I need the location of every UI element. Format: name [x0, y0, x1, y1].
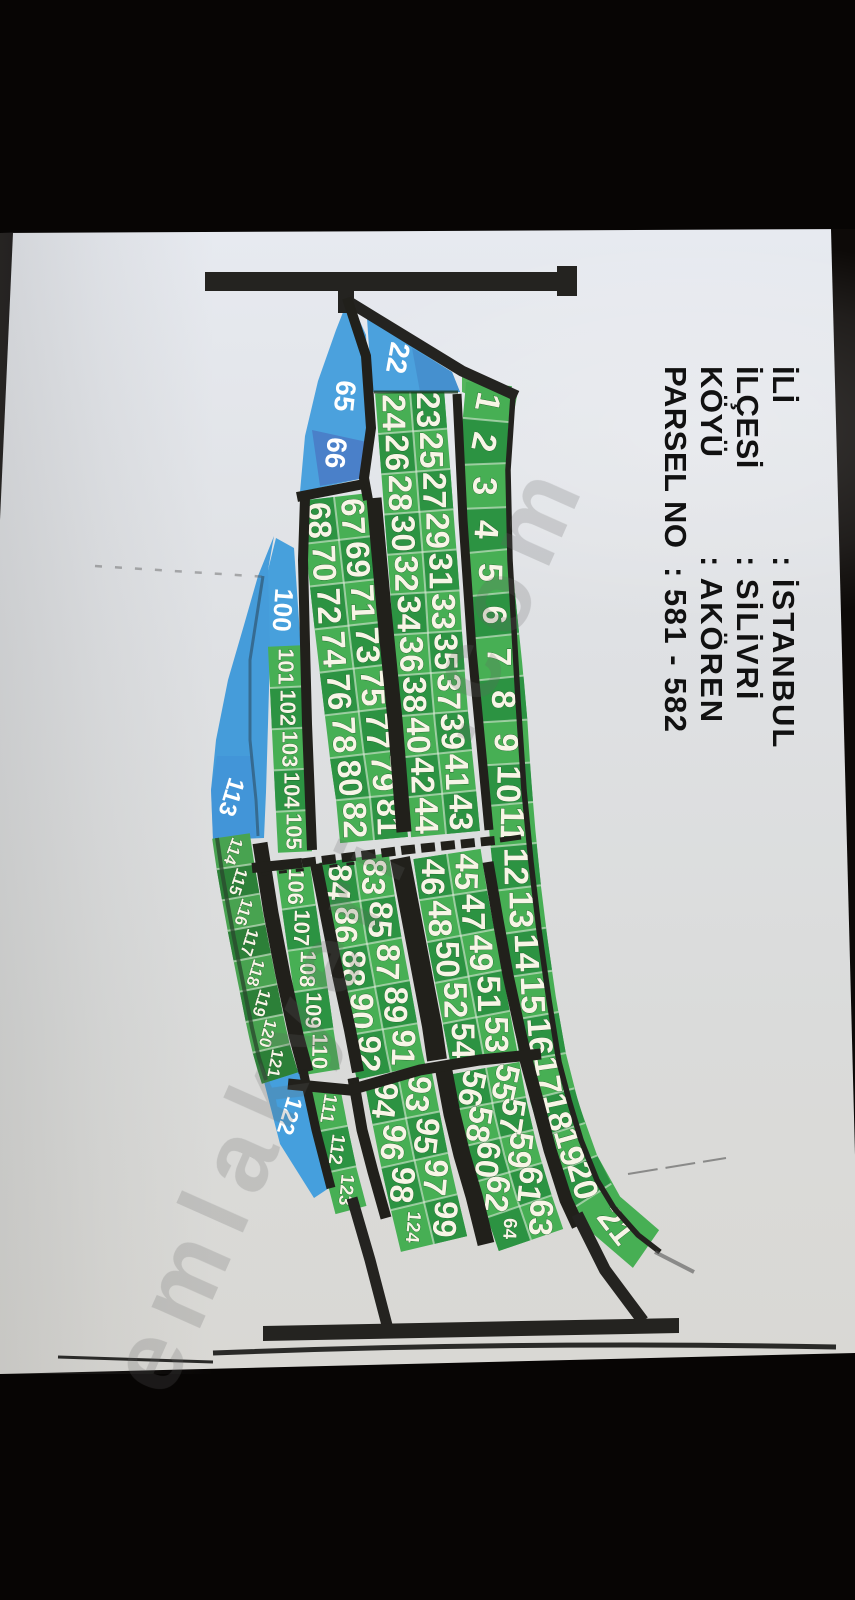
svg-text:44: 44: [408, 797, 446, 835]
svg-text:İLİ: İLİ: [766, 366, 801, 404]
svg-text:67: 67: [334, 497, 373, 535]
svg-text:28: 28: [382, 475, 419, 512]
svg-text:48: 48: [421, 900, 459, 937]
svg-text:PARSEL NO: PARSEL NO: [658, 366, 693, 549]
svg-text:78: 78: [325, 716, 364, 754]
svg-text:53: 53: [478, 1016, 515, 1053]
svg-text:95: 95: [406, 1116, 447, 1157]
svg-text:47: 47: [455, 894, 493, 931]
svg-text:103: 103: [277, 731, 302, 768]
svg-text:30: 30: [385, 515, 422, 552]
svg-text:72: 72: [310, 587, 348, 625]
svg-text:45: 45: [448, 853, 486, 891]
svg-text:50: 50: [429, 941, 467, 978]
svg-text:32: 32: [388, 555, 425, 592]
svg-text:76: 76: [320, 673, 359, 711]
svg-text:89: 89: [377, 986, 415, 1024]
svg-text:63: 63: [522, 1198, 561, 1237]
svg-text:124: 124: [401, 1210, 425, 1244]
svg-text:İLÇESİ: İLÇESİ: [730, 366, 765, 469]
svg-text:105: 105: [281, 813, 306, 850]
svg-text:100: 100: [267, 587, 300, 632]
svg-text:24: 24: [375, 394, 412, 432]
svg-text:23: 23: [410, 391, 447, 428]
svg-text:: İSTANBUL: : İSTANBUL: [766, 556, 801, 749]
svg-text:65: 65: [328, 379, 362, 413]
svg-text:70: 70: [305, 544, 343, 582]
svg-text:51: 51: [470, 975, 508, 1012]
svg-text:101: 101: [273, 648, 298, 685]
svg-text:102: 102: [275, 689, 300, 726]
svg-text:49: 49: [463, 934, 501, 971]
svg-text:43: 43: [442, 794, 480, 831]
svg-text:64: 64: [498, 1217, 520, 1240]
svg-text:: 581 - 582: : 581 - 582: [658, 567, 693, 733]
svg-text:27: 27: [416, 472, 453, 509]
svg-text:26: 26: [379, 434, 416, 471]
svg-text:: SİLİVRİ: : SİLİVRİ: [730, 556, 765, 701]
svg-text:41: 41: [438, 753, 476, 791]
svg-text:25: 25: [413, 432, 450, 469]
svg-text:: AKÖREN: : AKÖREN: [694, 556, 729, 724]
svg-text:29: 29: [419, 512, 456, 549]
svg-text:52: 52: [437, 981, 475, 1018]
svg-text:74: 74: [315, 630, 354, 669]
svg-text:97: 97: [416, 1158, 456, 1198]
svg-text:91: 91: [385, 1029, 423, 1067]
svg-text:99: 99: [426, 1199, 466, 1239]
svg-text:66: 66: [319, 436, 353, 470]
svg-text:54: 54: [445, 1022, 482, 1060]
svg-text:42: 42: [404, 756, 442, 794]
svg-text:KÖYÜ: KÖYÜ: [694, 366, 729, 458]
svg-text:80: 80: [330, 758, 370, 797]
svg-text:104: 104: [279, 772, 304, 810]
